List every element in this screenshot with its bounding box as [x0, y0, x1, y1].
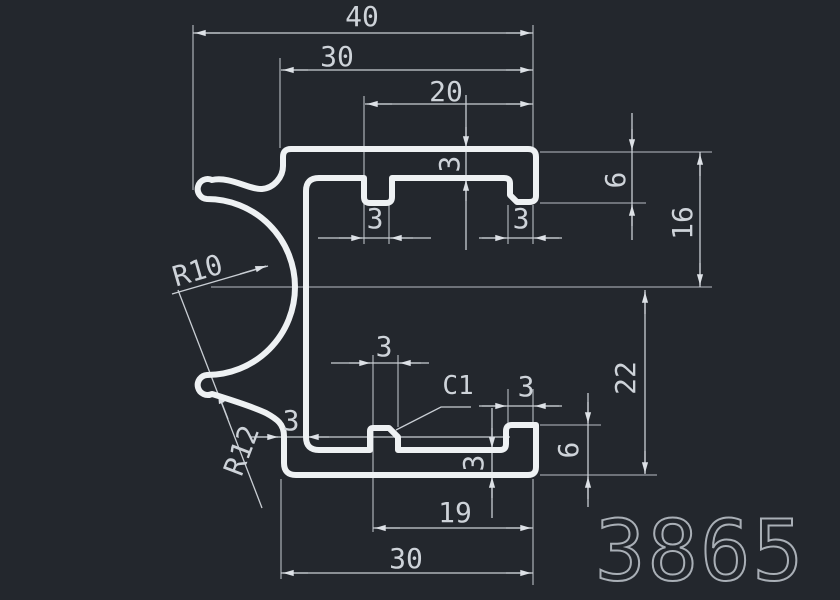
- dim-bottom-inner-width-label: 19: [438, 496, 472, 529]
- dim-bump-width-label: 3: [376, 330, 393, 363]
- dim-top-step-width-label: 3: [513, 202, 530, 235]
- dim-lower-height-label: 22: [609, 361, 642, 395]
- dim-bottom-step-width-label: 3: [518, 370, 535, 403]
- dim-wall-thickness-label: 3: [283, 404, 300, 437]
- cad-drawing-canvas: 40 30 20 3 3 3 6 16 22 6 C1 3 3 3 3 19 3…: [0, 0, 840, 600]
- dim-bottom-lip-depth-label: 6: [552, 442, 585, 459]
- dim-chamfer-label: C1: [442, 371, 473, 401]
- dim-slot-width-label: 20: [429, 75, 463, 108]
- part-number-text: 3865: [595, 502, 805, 600]
- dim-overall-width-label: 40: [345, 0, 379, 33]
- dim-top-flange-thickness-label: 3: [433, 156, 466, 173]
- dim-top-width-label: 30: [320, 40, 354, 73]
- dim-bottom-width-label: 30: [389, 542, 423, 575]
- dim-bottom-flange-thickness-label: 3: [457, 455, 490, 472]
- dim-upper-height-label: 16: [666, 206, 699, 240]
- dim-top-notch-width-label: 3: [367, 202, 384, 235]
- dim-top-lip-depth-label: 6: [599, 172, 632, 189]
